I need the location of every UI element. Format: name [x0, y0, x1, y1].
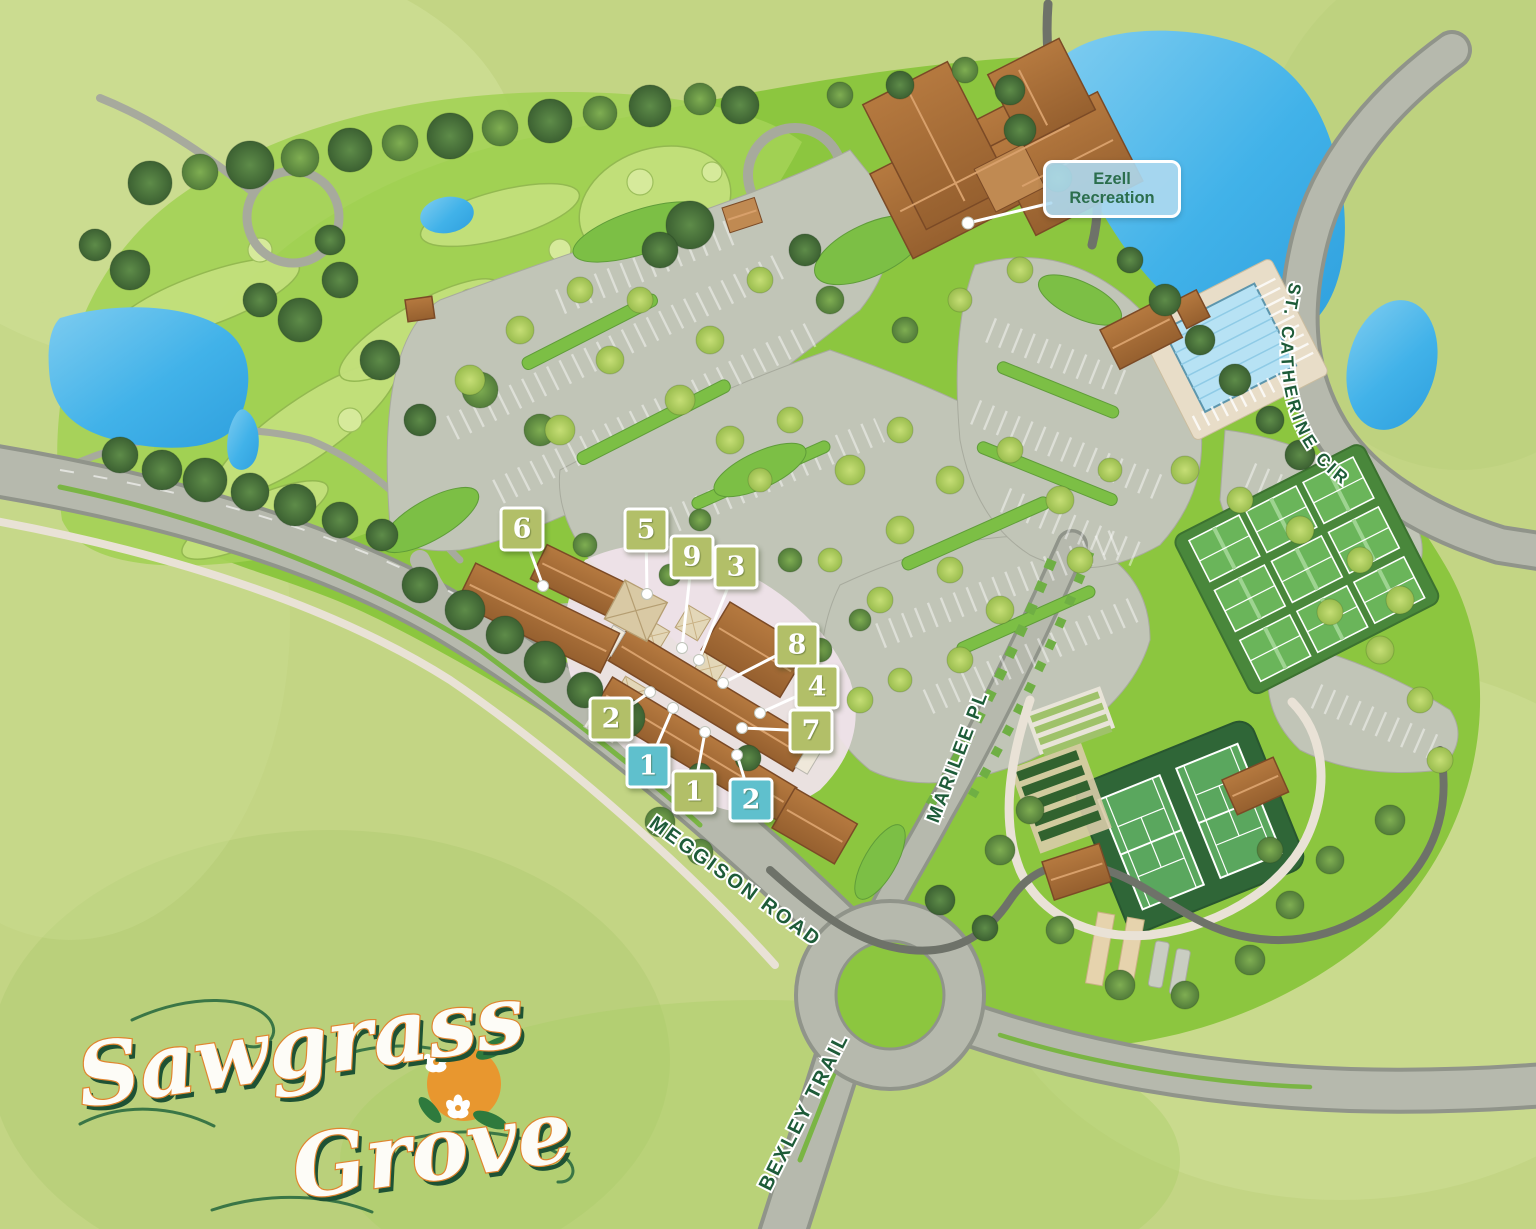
map-marker-3[interactable]: 3: [714, 545, 759, 590]
ezell-recreation-callout[interactable]: Ezell Recreation: [1043, 160, 1181, 218]
map-marker-1-olive[interactable]: 1: [672, 770, 717, 815]
map-marker-1-teal[interactable]: 1: [626, 744, 671, 789]
map-marker-5[interactable]: 5: [624, 508, 669, 553]
map-marker-6[interactable]: 6: [500, 507, 545, 552]
golf-hut: [405, 296, 435, 322]
map-marker-9[interactable]: 9: [670, 535, 715, 580]
sawgrass-grove-logo: Sawgrass Sawgrass Grove Grove: [62, 982, 602, 1229]
map-marker-7[interactable]: 7: [789, 709, 834, 754]
map-marker-2-olive[interactable]: 2: [589, 697, 634, 742]
map-marker-2-teal[interactable]: 2: [729, 778, 774, 823]
ezell-callout-line1: Ezell: [1054, 170, 1170, 189]
ezell-callout-line2: Recreation: [1054, 189, 1170, 208]
map-marker-8[interactable]: 8: [775, 623, 820, 668]
logo-word2: Grove: [286, 1081, 578, 1220]
sawgrass-grove-map: MEGGISON ROAD BEXLEY TRAIL MARILEE PL ST…: [0, 0, 1536, 1229]
map-marker-4[interactable]: 4: [795, 665, 840, 710]
